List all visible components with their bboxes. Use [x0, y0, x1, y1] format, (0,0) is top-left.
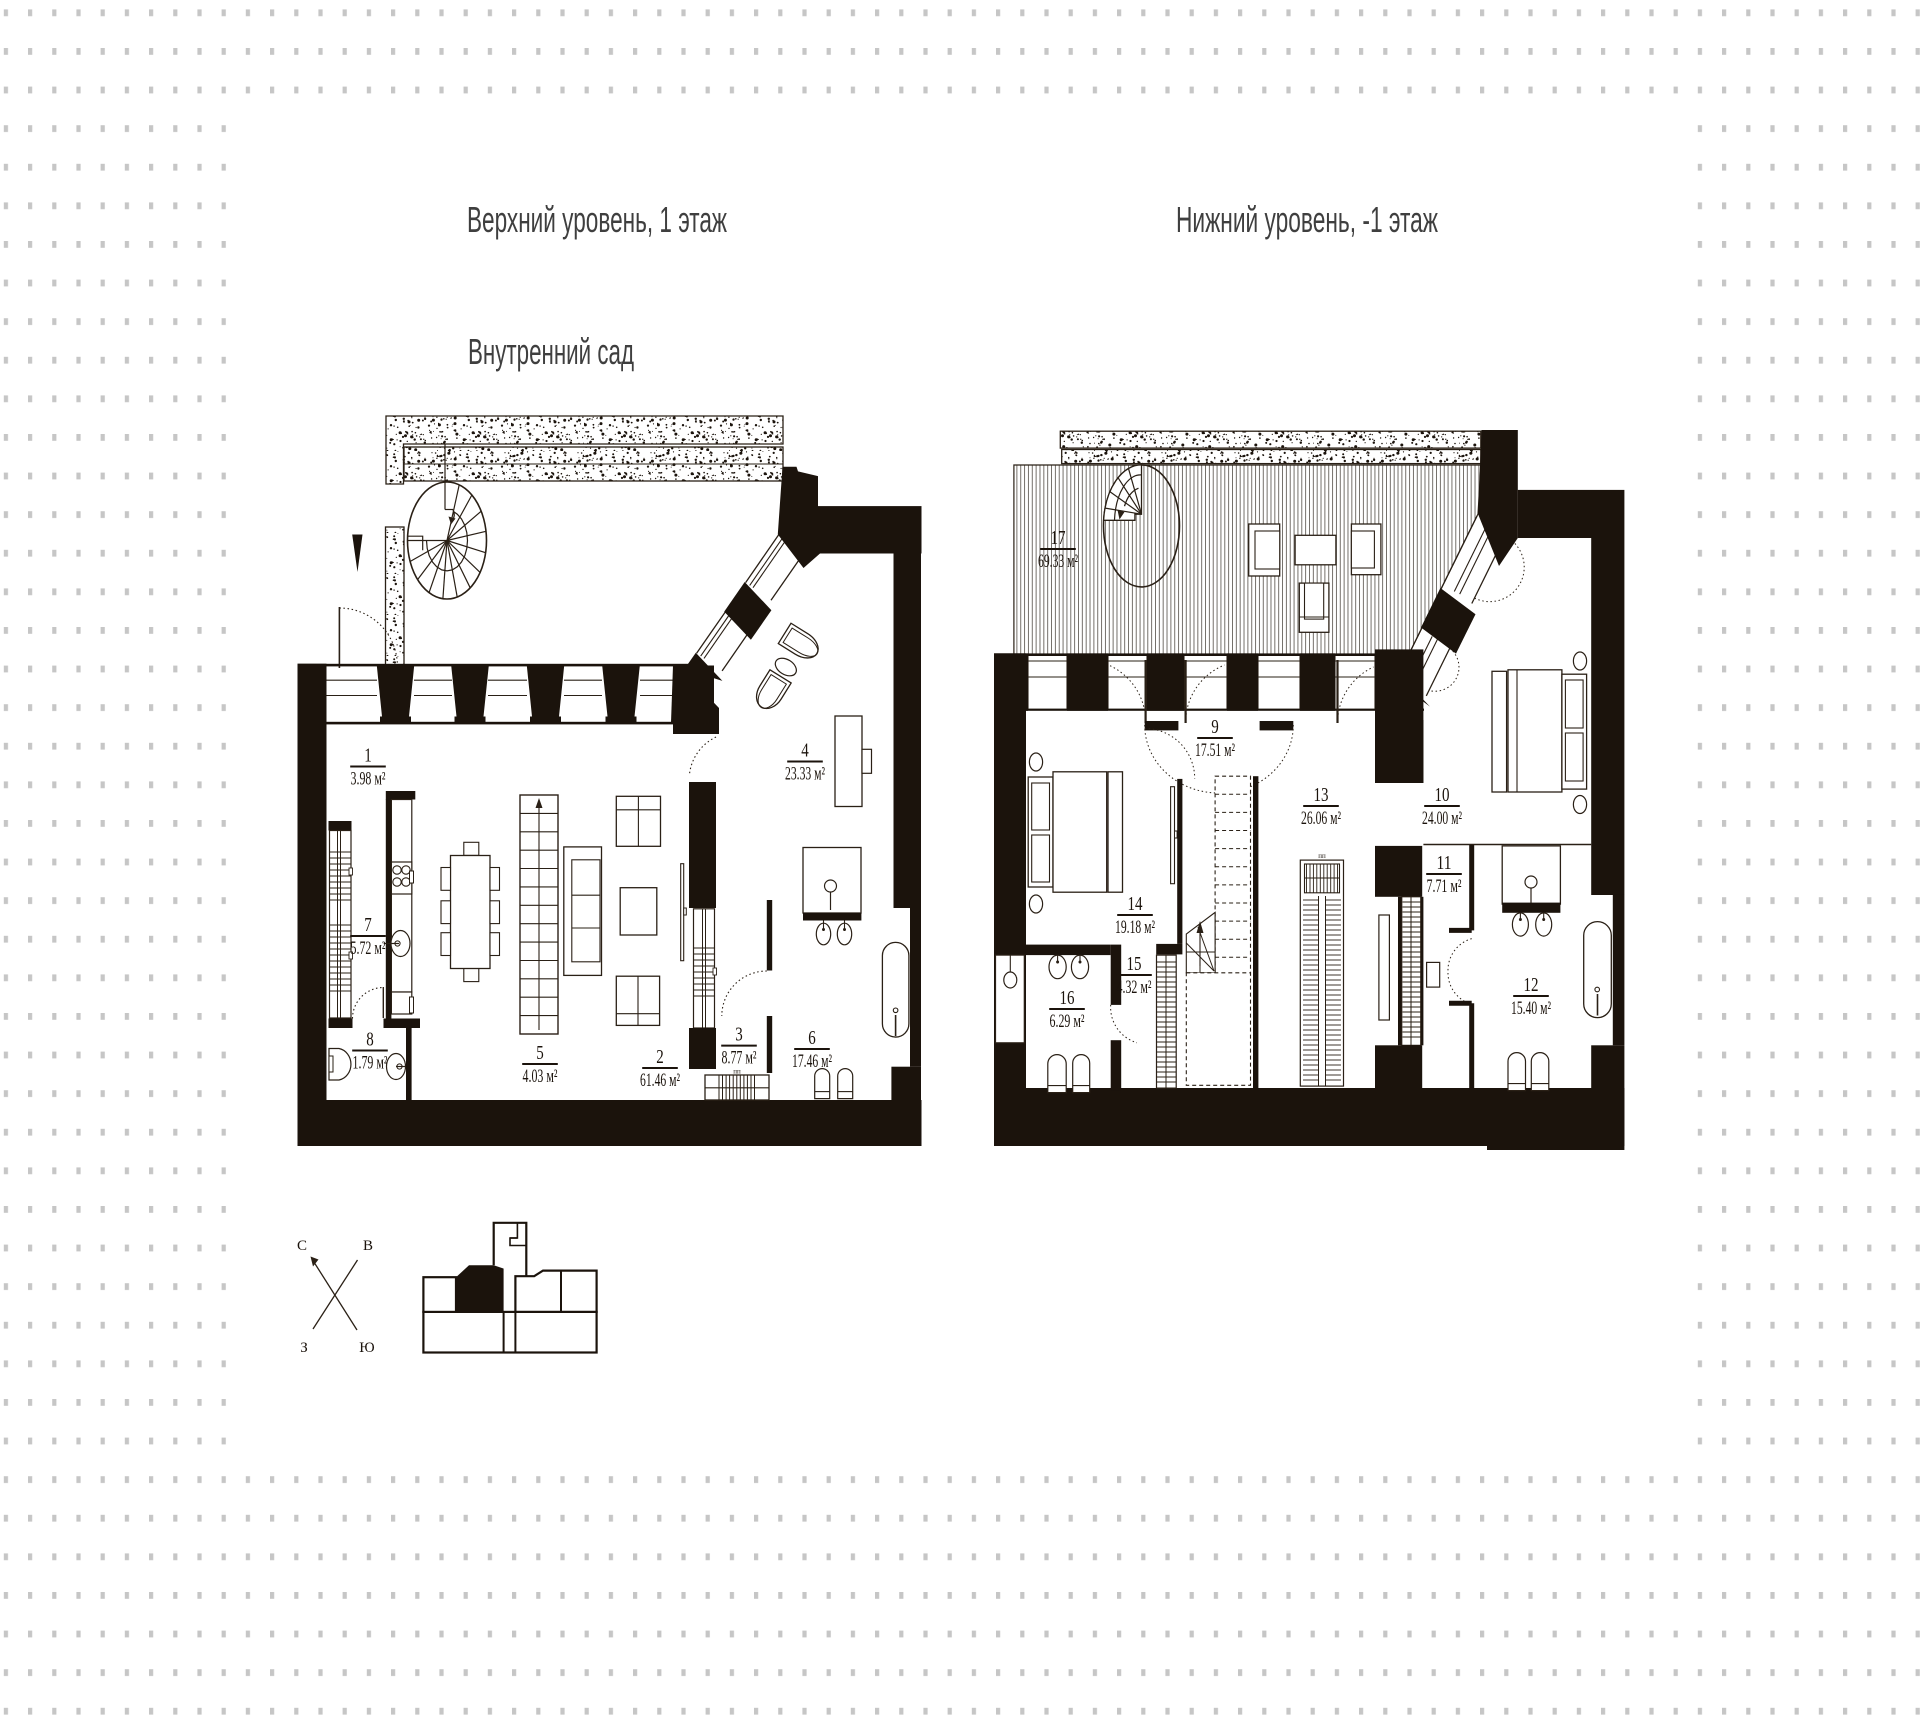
svg-text:8.77 м²: 8.77 м²: [722, 1049, 757, 1069]
svg-text:19.18 м²: 19.18 м²: [1115, 918, 1155, 938]
svg-text:7.71 м²: 7.71 м²: [1427, 877, 1462, 897]
svg-text:В: В: [363, 1238, 373, 1254]
svg-text:23.33 м²: 23.33 м²: [785, 765, 825, 785]
svg-text:1.79 м²: 1.79 м²: [353, 1054, 388, 1074]
svg-text:4.03 м²: 4.03 м²: [523, 1067, 558, 1087]
svg-text:9: 9: [1211, 716, 1219, 738]
svg-text:1: 1: [364, 745, 372, 767]
svg-text:3: 3: [735, 1024, 743, 1046]
svg-text:6.29 м²: 6.29 м²: [1050, 1012, 1085, 1032]
svg-text:3.98 м²: 3.98 м²: [351, 770, 386, 790]
svg-text:10: 10: [1435, 784, 1450, 806]
svg-text:13: 13: [1314, 784, 1329, 806]
svg-text:Верхний уровень, 1 этаж: Верхний уровень, 1 этаж: [467, 199, 727, 240]
svg-text:С: С: [297, 1238, 307, 1254]
svg-text:17: 17: [1051, 527, 1066, 549]
svg-text:15.40 м²: 15.40 м²: [1511, 999, 1551, 1019]
svg-text:26.06 м²: 26.06 м²: [1301, 809, 1341, 829]
svg-text:24.00 м²: 24.00 м²: [1422, 809, 1462, 829]
svg-text:69.33 м²: 69.33 м²: [1038, 552, 1078, 572]
svg-text:15: 15: [1127, 953, 1142, 975]
svg-text:12: 12: [1524, 974, 1539, 996]
svg-text:Ю: Ю: [359, 1340, 374, 1356]
svg-text:11: 11: [1437, 852, 1452, 874]
svg-text:8: 8: [366, 1029, 374, 1051]
svg-text:пп: пп: [1318, 852, 1326, 860]
svg-text:4.32 м²: 4.32 м²: [1117, 978, 1152, 998]
svg-text:5.72 м²: 5.72 м²: [351, 939, 386, 959]
svg-text:пп: пп: [733, 1068, 741, 1076]
svg-text:14: 14: [1128, 893, 1143, 915]
svg-text:Нижний уровень, -1 этаж: Нижний уровень, -1 этаж: [1176, 199, 1438, 240]
svg-text:17.51 м²: 17.51 м²: [1195, 741, 1235, 761]
svg-text:16: 16: [1060, 987, 1075, 1009]
svg-text:6: 6: [808, 1027, 816, 1049]
svg-text:4: 4: [801, 740, 809, 762]
svg-text:17.46 м²: 17.46 м²: [792, 1052, 832, 1072]
svg-text:61.46 м²: 61.46 м²: [640, 1071, 680, 1091]
svg-text:2: 2: [656, 1046, 664, 1068]
svg-text:7: 7: [364, 914, 372, 936]
svg-text:З: З: [300, 1340, 308, 1356]
svg-text:Внутренний сад: Внутренний сад: [468, 331, 634, 372]
svg-text:5: 5: [536, 1042, 544, 1064]
